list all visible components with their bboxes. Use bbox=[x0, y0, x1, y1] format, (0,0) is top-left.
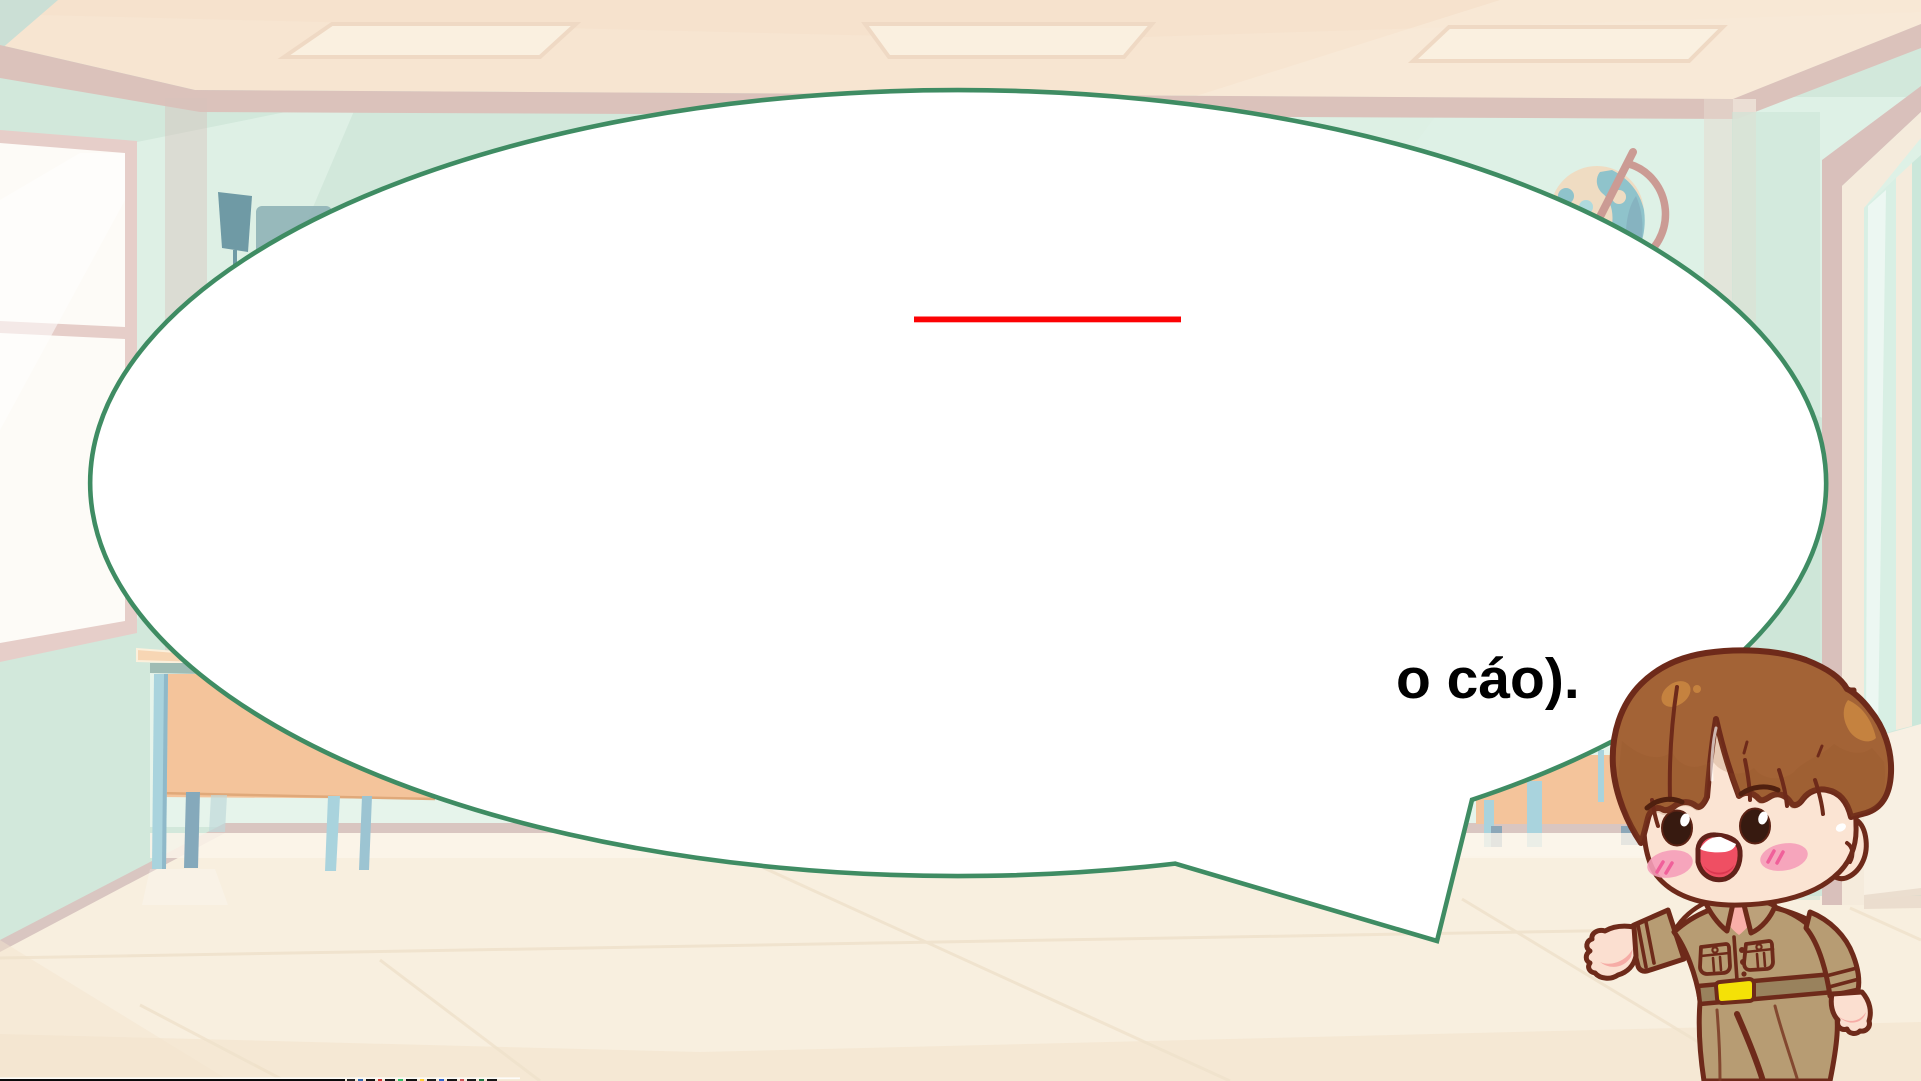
svg-text:o cáo).: o cáo). bbox=[1396, 647, 1580, 711]
